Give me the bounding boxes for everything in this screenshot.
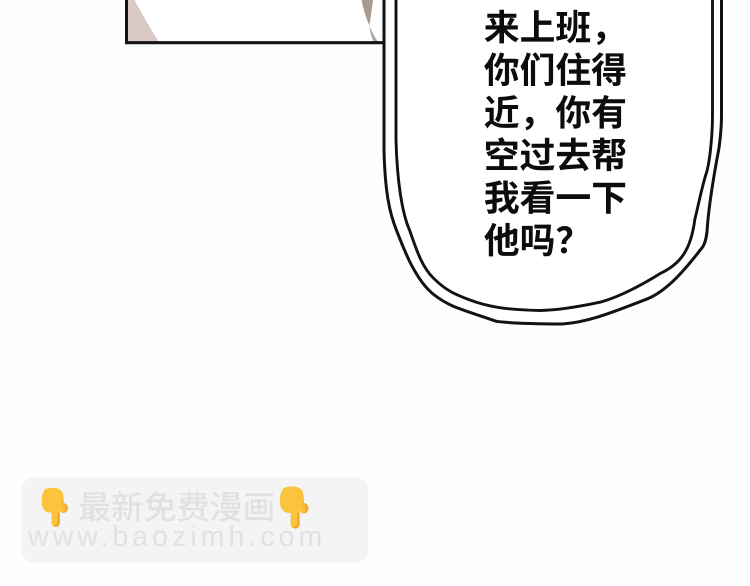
svg-text:www.baozimh.com: www.baozimh.com [27,521,326,553]
